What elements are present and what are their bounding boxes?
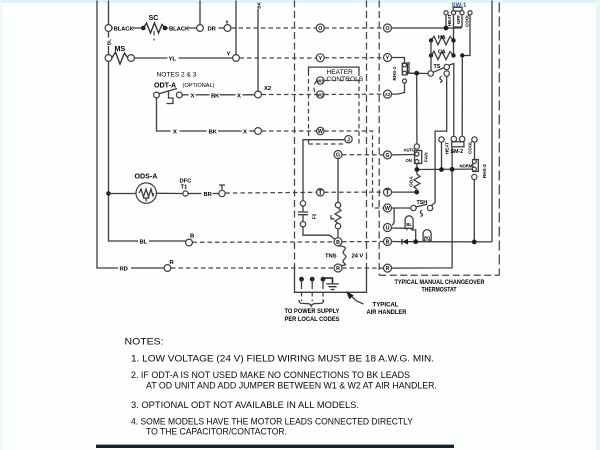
svg-text:HEAT: HEAT bbox=[444, 142, 449, 154]
svg-text:2. IF ODT-A IS NOT USED MAKE N: 2. IF ODT-A IS NOT USED MAKE NO CONNECTI… bbox=[131, 370, 410, 380]
svg-text:HA: HA bbox=[438, 35, 446, 41]
svg-text:T1: T1 bbox=[181, 185, 188, 191]
svg-text:Y: Y bbox=[386, 56, 390, 62]
svg-text:F2: F2 bbox=[312, 213, 318, 219]
svg-text:0: 0 bbox=[226, 19, 229, 25]
svg-text:W3: W3 bbox=[317, 79, 324, 84]
svg-text:TYPICAL MANUAL CHANGEOVER: TYPICAL MANUAL CHANGEOVER bbox=[395, 279, 485, 286]
svg-text:BK: BK bbox=[257, 1, 263, 8]
svg-text:Y: Y bbox=[227, 52, 231, 58]
svg-text:SM-2: SM-2 bbox=[451, 149, 464, 155]
svg-text:BR: BR bbox=[204, 192, 213, 198]
svg-text:Y: Y bbox=[319, 56, 323, 62]
svg-text:HEATER: HEATER bbox=[327, 69, 353, 76]
svg-text:TO POWER SUPPLY: TO POWER SUPPLY bbox=[285, 308, 341, 315]
svg-text:TO THE CAPACITOR/CONTACTOR.: TO THE CAPACITOR/CONTACTOR. bbox=[146, 427, 287, 437]
svg-text:ODA: ODA bbox=[408, 176, 414, 187]
svg-text:W: W bbox=[385, 206, 390, 212]
svg-text:B: B bbox=[386, 240, 390, 246]
svg-text:RHS-2: RHS-2 bbox=[482, 164, 487, 178]
svg-text:ODS-A: ODS-A bbox=[135, 173, 158, 181]
svg-text:X: X bbox=[243, 130, 247, 136]
svg-text:4. SOME MODELS HAVE THE MOTOR: 4. SOME MODELS HAVE THE MOTOR LEADS CONN… bbox=[131, 417, 413, 427]
svg-text:X: X bbox=[237, 93, 241, 99]
svg-text:PER LOCAL CODES: PER LOCAL CODES bbox=[285, 316, 341, 323]
svg-text:BLACK: BLACK bbox=[169, 26, 190, 32]
svg-text:ODT-A: ODT-A bbox=[154, 82, 176, 90]
svg-text:COOL: COOL bbox=[465, 14, 470, 27]
svg-text:X: X bbox=[191, 93, 195, 99]
svg-text:(OPTIONAL): (OPTIONAL) bbox=[183, 83, 215, 89]
svg-text:BK: BK bbox=[211, 93, 220, 99]
svg-text:B: B bbox=[336, 240, 340, 246]
svg-text:DR: DR bbox=[208, 26, 217, 32]
svg-text:R: R bbox=[336, 266, 340, 272]
svg-text:SC: SC bbox=[149, 14, 159, 22]
svg-text:24 V: 24 V bbox=[352, 254, 364, 260]
svg-text:NORM: NORM bbox=[460, 164, 473, 169]
svg-text:X: X bbox=[173, 130, 177, 136]
svg-text:TYPICAL: TYPICAL bbox=[373, 302, 399, 309]
svg-text:NORM: NORM bbox=[407, 62, 411, 73]
svg-text:COOL: COOL bbox=[468, 141, 473, 154]
svg-text:W2: W2 bbox=[317, 93, 324, 98]
svg-text:BL: BL bbox=[140, 240, 148, 246]
svg-text:B: B bbox=[190, 234, 194, 240]
svg-text:NOTES:: NOTES: bbox=[125, 337, 164, 347]
svg-text:O: O bbox=[318, 26, 322, 32]
svg-text:CONTROLS: CONTROLS bbox=[327, 76, 364, 83]
svg-text:BL: BL bbox=[107, 39, 113, 45]
svg-text:X2: X2 bbox=[385, 92, 391, 97]
svg-text:BK: BK bbox=[209, 130, 218, 136]
svg-text:ON: ON bbox=[406, 158, 412, 163]
svg-text:NOTES 2 & 3: NOTES 2 & 3 bbox=[157, 72, 197, 79]
svg-text:W: W bbox=[318, 129, 323, 135]
svg-text:MS: MS bbox=[115, 45, 126, 53]
svg-text:J: J bbox=[347, 137, 350, 143]
svg-text:X2: X2 bbox=[264, 86, 272, 92]
svg-text:G: G bbox=[385, 153, 389, 159]
svg-text:BL: BL bbox=[406, 222, 412, 227]
svg-text:CA: CA bbox=[438, 50, 446, 56]
svg-text:1. LOW VOLTAGE (24 V) FIELD WI: 1. LOW VOLTAGE (24 V) FIELD WIRING MUST … bbox=[131, 354, 434, 364]
svg-text:O: O bbox=[385, 26, 389, 32]
svg-text:RD: RD bbox=[120, 267, 128, 273]
svg-text:THERMOSTAT: THERMOSTAT bbox=[422, 287, 457, 294]
svg-text:HEAT: HEAT bbox=[447, 14, 452, 26]
svg-text:AT OD UNIT AND ADD JUMPER BETW: AT OD UNIT AND ADD JUMPER BETWEEN W1 & W… bbox=[146, 381, 437, 391]
svg-text:OFF: OFF bbox=[456, 15, 461, 24]
svg-text:RHS-1: RHS-1 bbox=[392, 66, 397, 80]
svg-text:G: G bbox=[336, 153, 340, 159]
svg-text:3. OPTIONAL ODT NOT AVAILABLE: 3. OPTIONAL ODT NOT AVAILABLE IN ALL MOD… bbox=[131, 400, 359, 410]
svg-text:AIR HANDLER: AIR HANDLER bbox=[367, 309, 407, 316]
svg-text:TNS: TNS bbox=[325, 254, 337, 260]
svg-text:U: U bbox=[386, 226, 390, 232]
svg-text:R: R bbox=[386, 266, 390, 272]
svg-text:BLACK: BLACK bbox=[114, 26, 135, 32]
svg-text:YL: YL bbox=[169, 56, 177, 62]
svg-text:FAN: FAN bbox=[424, 152, 430, 162]
